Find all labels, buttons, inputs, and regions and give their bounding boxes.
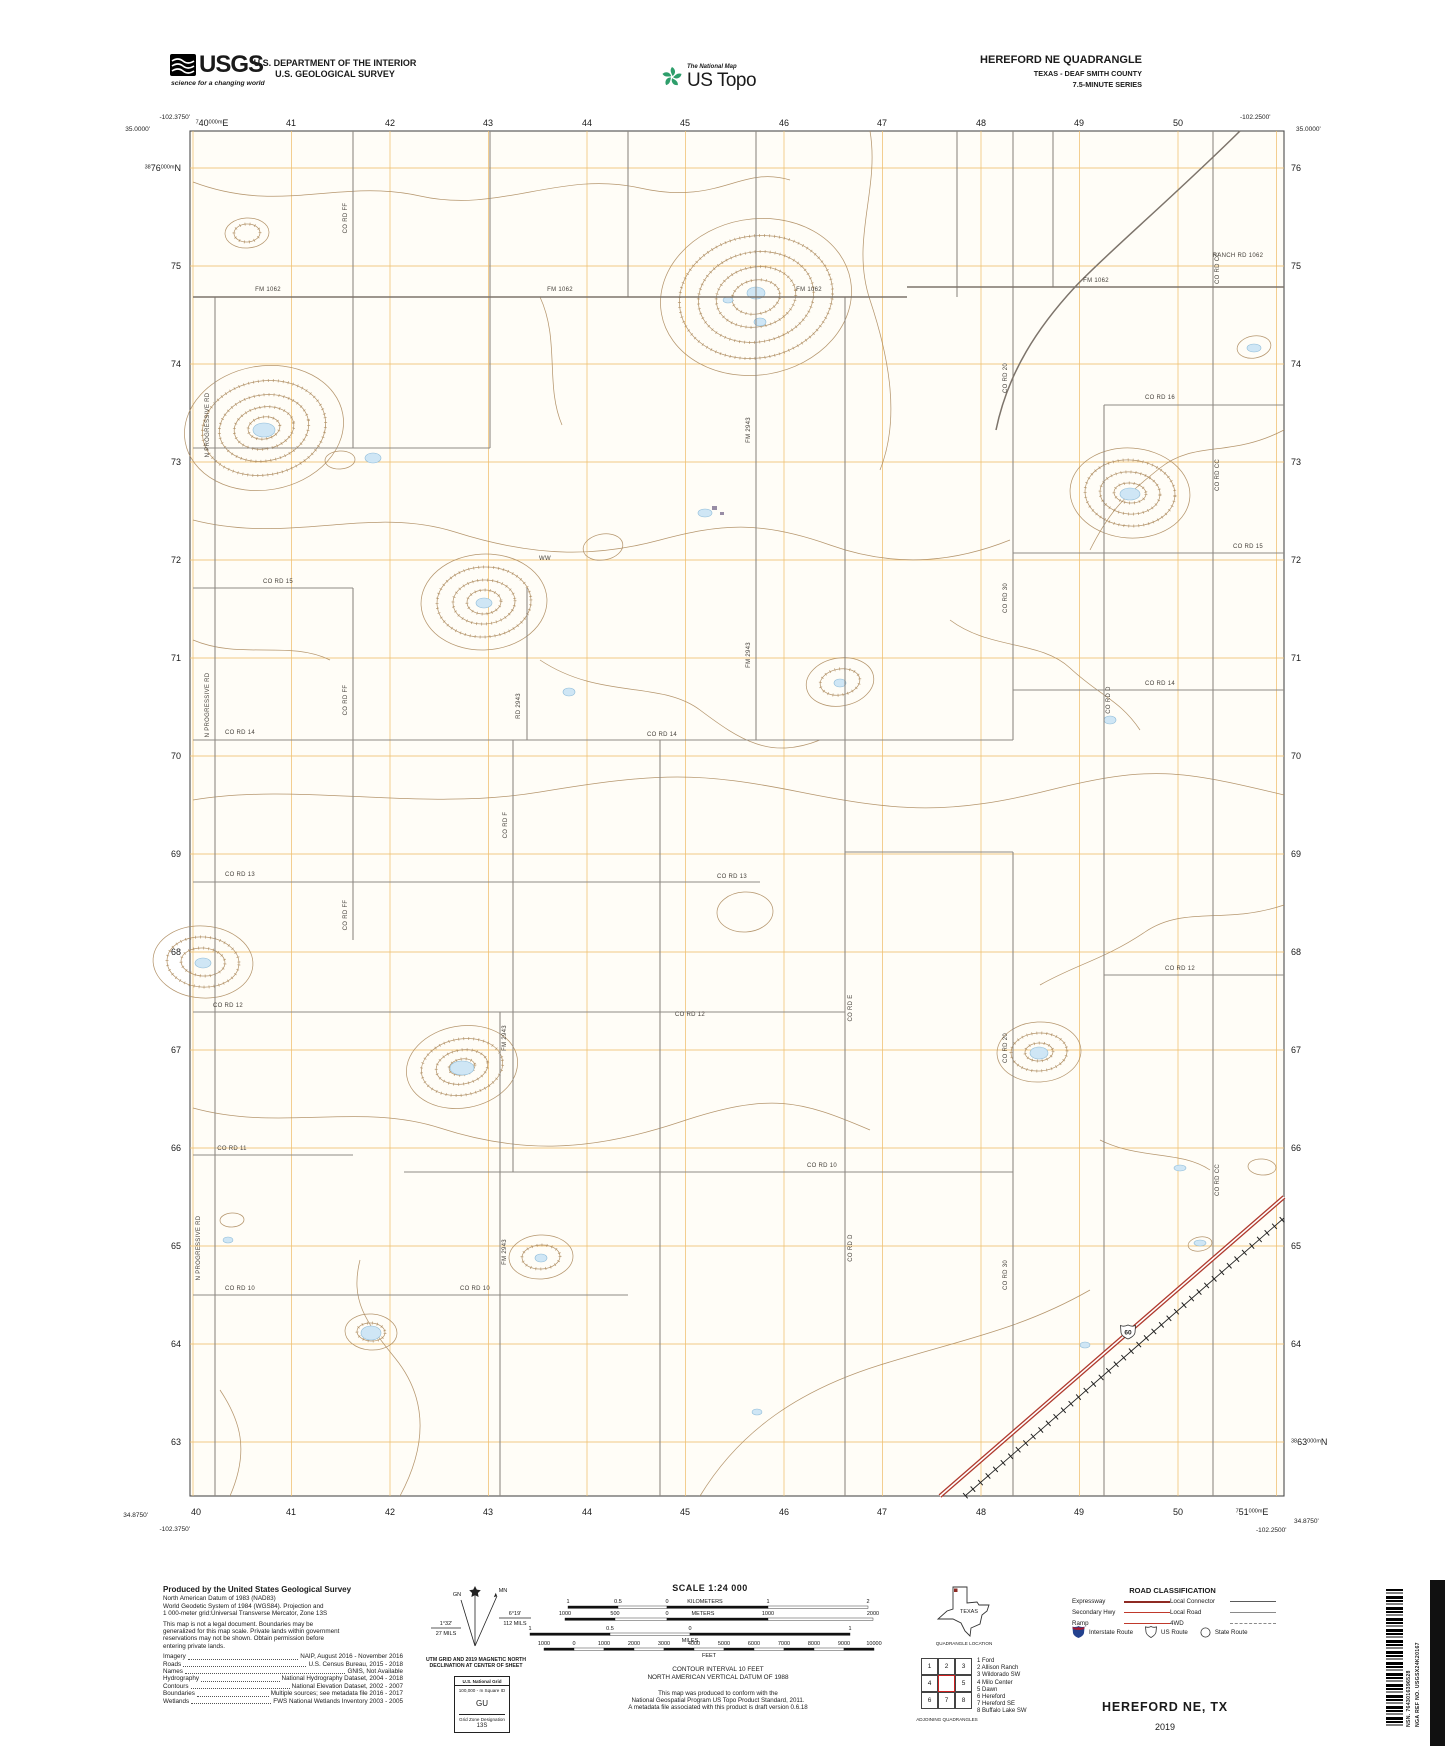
grid-label: 42 <box>385 1507 395 1517</box>
usng-zone-label: Grid Zone Designation <box>455 1715 509 1722</box>
road-label: CO RD 12 <box>1165 966 1195 972</box>
road-label: FM 1062 <box>1083 278 1109 284</box>
svg-text:0: 0 <box>665 1611 668 1617</box>
road-label: FM 1062 <box>255 287 281 293</box>
road-label: CO RD 15 <box>1233 544 1263 550</box>
road-label: FM 1062 <box>547 287 573 293</box>
road-label: CO RD 10 <box>225 1286 255 1292</box>
local-road-line-sample <box>1230 1612 1276 1613</box>
svg-text:5000: 5000 <box>718 1641 730 1647</box>
credit-source-row: ImageryNAIP, August 2016 - November 2016 <box>163 1653 403 1660</box>
svg-text:1: 1 <box>766 1599 769 1605</box>
grid-label: 69 <box>1291 849 1301 859</box>
data-sources-list: ImageryNAIP, August 2016 - November 2016… <box>163 1653 403 1705</box>
grid-label: 67 <box>171 1045 181 1055</box>
svg-text:8000: 8000 <box>808 1641 820 1647</box>
grid-label: 67 <box>1291 1045 1301 1055</box>
adjoining-quad-name: 6 Hereford <box>977 1694 1027 1701</box>
legal-line: reservations may not be shown. Obtain pe… <box>163 1635 403 1642</box>
svg-text:2000: 2000 <box>628 1641 640 1647</box>
road-label: N PROGRESSIVE RD <box>205 392 211 457</box>
svg-text:0: 0 <box>688 1626 691 1632</box>
road-label: CO RD 16 <box>1145 395 1175 401</box>
road-label: CO RD F <box>503 812 509 839</box>
svg-text:1000: 1000 <box>762 1611 774 1617</box>
adjoining-cell: 1 <box>921 1658 939 1676</box>
grid-label: 48 <box>976 118 986 128</box>
road-label: CO RD CC <box>1215 252 1221 284</box>
svg-text:FEET: FEET <box>702 1653 717 1659</box>
road-label: CO RD 30 <box>1003 1260 1009 1290</box>
road-label: CO RD FF <box>343 900 349 931</box>
grid-label: 45 <box>680 1507 690 1517</box>
legal-line: This map is not a legal document. Bounda… <box>163 1621 403 1628</box>
scale-bars: 10.5012KILOMETERS1000500010002000METERS1… <box>480 1595 910 1667</box>
credits-title: Produced by the United States Geological… <box>163 1586 403 1593</box>
svg-text:0: 0 <box>572 1641 575 1647</box>
grid-label: 75 <box>1291 261 1301 271</box>
svg-text:1: 1 <box>848 1626 851 1632</box>
svg-text:2: 2 <box>866 1599 869 1605</box>
credit-source-row: BoundariesMultiple sources; see metadata… <box>163 1690 403 1697</box>
adjoining-cell: 3 <box>955 1658 973 1676</box>
state-route-label: State Route <box>1215 1629 1248 1636</box>
adjoining-cell: 2 <box>938 1658 956 1676</box>
scale-title: SCALE 1:24 000 <box>560 1583 860 1593</box>
grid-label: 46 <box>779 1507 789 1517</box>
grid-label: 70 <box>1291 751 1301 761</box>
svg-text:1000: 1000 <box>538 1641 550 1647</box>
adjoining-quad-name: 3 Wildorado SW <box>977 1672 1027 1679</box>
road-label: CO RD 13 <box>225 872 255 878</box>
barcode-nsn: NSN. 7643016396528 <box>1406 1587 1412 1727</box>
barcode-nga-ref: NGA REF NO. USGSX24K20167 <box>1415 1587 1421 1727</box>
quad-location-marker <box>954 1589 958 1593</box>
grid-label: 47 <box>877 1507 887 1517</box>
usng-square-id: GU <box>455 1693 509 1714</box>
standard-conformance-note: This map was produced to conform with th… <box>560 1690 876 1712</box>
state-locator-map: TEXAS <box>936 1586 992 1638</box>
grid-label: 65 <box>171 1241 181 1251</box>
road-classification-title: ROAD CLASSIFICATION <box>1070 1586 1275 1595</box>
road-label: CO RD E <box>848 994 854 1021</box>
grid-label: 75 <box>171 261 181 271</box>
svg-text:500: 500 <box>610 1611 619 1617</box>
grid-label: 73 <box>1291 457 1301 467</box>
svg-text:0.5: 0.5 <box>606 1626 614 1632</box>
map-neatline <box>190 131 1284 1496</box>
adjoining-cell: 7 <box>938 1692 956 1710</box>
state-route-circle-icon <box>1200 1627 1211 1638</box>
sheet-title: HEREFORD NE, TX <box>1055 1700 1275 1714</box>
svg-text:4000: 4000 <box>688 1641 700 1647</box>
credit-source-row: NamesGNIS, Not Available <box>163 1668 403 1675</box>
svg-text:0: 0 <box>665 1599 668 1605</box>
grid-label: 45 <box>680 118 690 128</box>
grid-label: 68 <box>1291 947 1301 957</box>
road-label: CO RD 11 <box>217 1146 247 1152</box>
svg-text:10000: 10000 <box>866 1641 881 1647</box>
legend-local-road-label: Local Road <box>1170 1609 1230 1616</box>
grid-label: 48 <box>976 1507 986 1517</box>
adjoining-quad-name: 4 Milo Center <box>977 1680 1027 1687</box>
adjoining-quad-name: 7 Hereford SE <box>977 1701 1027 1708</box>
grid-label: 74 <box>171 359 181 369</box>
legend-expressway-label: Expressway <box>1072 1598 1124 1605</box>
grid-label: 72 <box>171 555 181 565</box>
usng-zone: 13S <box>455 1722 509 1732</box>
grid-label: 41 <box>286 118 296 128</box>
road-label: N PROGRESSIVE RD <box>196 1215 202 1280</box>
svg-text:0.5: 0.5 <box>614 1599 622 1605</box>
road-label: CO RD 14 <box>225 730 255 736</box>
road-label: FM 2943 <box>746 417 752 443</box>
adjoining-quad-name: 2 Allison Ranch <box>977 1665 1027 1672</box>
adjoining-quadrangles-grid: 12345678 <box>921 1658 972 1709</box>
svg-text:7000: 7000 <box>778 1641 790 1647</box>
adjoining-cell: 4 <box>921 1675 939 1693</box>
grid-label: 71 <box>171 653 181 663</box>
credit-source-row: RoadsU.S. Census Bureau, 2015 - 2018 <box>163 1661 403 1668</box>
us-route-number: 60 <box>1124 1330 1132 1337</box>
barcode <box>1386 1589 1403 1727</box>
secondary-hwy-line-sample <box>1124 1612 1170 1613</box>
adjoining-quadrangles-list: 1 Ford2 Allison Ranch3 Wildorado SW4 Mil… <box>977 1658 1027 1716</box>
road-label: CO RD 13 <box>717 874 747 880</box>
svg-text:KILOMETERS: KILOMETERS <box>687 1599 723 1605</box>
grid-label: 64 <box>171 1339 181 1349</box>
road-label: CO RD 14 <box>1145 681 1175 687</box>
svg-text:1: 1 <box>528 1626 531 1632</box>
map-canvas: 60 740000mE41424344454647484950404142434… <box>0 0 1445 1746</box>
interstate-route-label: Interstate Route <box>1089 1629 1133 1636</box>
interstate-shield-icon <box>1072 1626 1085 1638</box>
adjoining-quadrangles-caption: ADJOINING QUADRANGLES <box>903 1717 991 1722</box>
legend-local-connector-label: Local Connector <box>1170 1598 1230 1605</box>
road-label: CO RD CC <box>1215 459 1221 491</box>
grid-label: 66 <box>1291 1143 1301 1153</box>
svg-text:2000: 2000 <box>867 1611 879 1617</box>
grid-label: 50 <box>1173 118 1183 128</box>
road-label: FM 2943 <box>502 1239 508 1265</box>
grid-label: 46 <box>779 118 789 128</box>
adjoining-quad-name: 8 Buffalo Lake SW <box>977 1708 1027 1715</box>
local-connector-line-sample <box>1230 1601 1276 1602</box>
road-label: CO RD FF <box>343 203 349 234</box>
grid-label: 3863000mN <box>1291 1437 1327 1447</box>
corner-coord-se-lat: 34.8750' <box>1294 1518 1319 1525</box>
datum-line: World Geodetic System of 1984 (WGS84). P… <box>163 1603 403 1610</box>
adjoining-cell: 5 <box>955 1675 973 1693</box>
grid-label: 71 <box>1291 653 1301 663</box>
grid-label: 72 <box>1291 555 1301 565</box>
usng-title: U.S. National Grid <box>455 1677 509 1686</box>
svg-text:1000: 1000 <box>598 1641 610 1647</box>
adjoining-quad-name: 5 Dawn <box>977 1687 1027 1694</box>
usng-square-id-label: 100,000 - m Square ID <box>455 1686 509 1693</box>
road-label: FM 2943 <box>502 1025 508 1051</box>
corner-coord-sw-lat: 34.8750' <box>88 1512 148 1519</box>
gn-declination-mils: 27 MILS <box>436 1631 457 1637</box>
corner-coord-nw-lat: 35.0000' <box>90 126 150 133</box>
datum-line: North American Datum of 1983 (NAD83) <box>163 1595 403 1602</box>
svg-text:1000: 1000 <box>559 1611 571 1617</box>
gn-declination-value: 1°32' <box>440 1621 452 1627</box>
road-label: WW <box>539 556 551 562</box>
grid-label: 76 <box>1291 163 1301 173</box>
grid-label: 41 <box>286 1507 296 1517</box>
usng-box: U.S. National Grid 100,000 - m Square ID… <box>454 1676 510 1733</box>
legal-line: generalized for this map scale. Private … <box>163 1628 403 1635</box>
grid-label: 69 <box>171 849 181 859</box>
corner-coord-ne-lon: -102.2500' <box>1240 114 1271 121</box>
grid-label: 740000mE <box>196 118 229 128</box>
corner-coord-nw-lon: -102.3750' <box>128 114 190 121</box>
magnetic-north-label: MN <box>499 1588 508 1594</box>
usgs-topo-sheet: USGS science for a changing world U.S. D… <box>0 0 1445 1746</box>
adjoining-current-quad <box>938 1675 956 1693</box>
road-label: CO RD 30 <box>1003 583 1009 613</box>
quadrangle-location-caption: QUADRANGLE LOCATION <box>926 1641 1002 1646</box>
grid-label: 50 <box>1173 1507 1183 1517</box>
grid-label: 49 <box>1074 118 1084 128</box>
grid-label: 751000mE <box>1236 1507 1269 1517</box>
road-classification-legend: Expressway Local Connector Secondary Hwy… <box>1072 1598 1276 1627</box>
road-label: FM 1062 <box>796 287 822 293</box>
grid-label: 65 <box>1291 1241 1301 1251</box>
road-label: CO RD D <box>848 1234 854 1262</box>
road-label: CO RD 10 <box>807 1163 837 1169</box>
road-label: CO RD 14 <box>647 732 677 738</box>
credit-source-row: WetlandsFWS National Wetlands Inventory … <box>163 1698 403 1705</box>
grid-label: 49 <box>1074 1507 1084 1517</box>
road-label: RD 2943 <box>516 693 522 719</box>
adjoining-cell: 8 <box>955 1692 973 1710</box>
legal-line: entering private lands. <box>163 1643 403 1650</box>
road-label: CO RD 20 <box>1003 363 1009 393</box>
road-label: CO RD 12 <box>675 1012 705 1018</box>
road-label: CO RD 12 <box>213 1003 243 1009</box>
svg-text:METERS: METERS <box>692 1611 715 1617</box>
fwd-line-sample <box>1230 1623 1276 1624</box>
grid-label: 42 <box>385 118 395 128</box>
grid-label: 63 <box>171 1437 181 1447</box>
us-route-label: US Route <box>1161 1629 1188 1636</box>
adjoining-cell: 6 <box>921 1692 939 1710</box>
grid-label: 68 <box>171 947 181 957</box>
svg-text:3000: 3000 <box>658 1641 670 1647</box>
road-label: CO RD D <box>1106 686 1112 714</box>
road-label: CO RD CC <box>1215 1164 1221 1196</box>
svg-text:9000: 9000 <box>838 1641 850 1647</box>
contour-interval-note: CONTOUR INTERVAL 10 FEET NORTH AMERICAN … <box>570 1666 866 1682</box>
grid-label: 47 <box>877 118 887 128</box>
adjoining-quad-name: 1 Ford <box>977 1658 1027 1665</box>
road-label: CO RD 10 <box>460 1286 490 1292</box>
grid-label: 3876000mN <box>145 163 181 173</box>
state-name: TEXAS <box>960 1609 978 1615</box>
expressway-line-sample <box>1124 1601 1170 1603</box>
route-marker-legend: Interstate Route US Route State Route <box>1072 1626 1282 1638</box>
grid-label: 44 <box>582 118 592 128</box>
datum-line: 1 000-meter grid:Universal Transverse Me… <box>163 1610 403 1617</box>
credit-source-row: ContoursNational Elevation Dataset, 2002… <box>163 1683 403 1690</box>
credit-source-row: HydrographyNational Hydrography Dataset,… <box>163 1675 403 1682</box>
corner-coord-se-lon: -102.2500' <box>1256 1527 1287 1534</box>
corner-coord-ne-lat: 35.0000' <box>1296 126 1321 133</box>
grid-label: 43 <box>483 118 493 128</box>
legend-secondary-label: Secondary Hwy <box>1072 1609 1124 1616</box>
road-label: FM 2943 <box>746 642 752 668</box>
road-label: CO RD 20 <box>1003 1033 1009 1063</box>
grid-label: 73 <box>171 457 181 467</box>
grid-label: 74 <box>1291 359 1301 369</box>
ramp-line-sample <box>1124 1623 1170 1624</box>
grid-label: 43 <box>483 1507 493 1517</box>
road-label: CO RD 15 <box>263 579 293 585</box>
grid-label: 66 <box>171 1143 181 1153</box>
svg-text:6000: 6000 <box>748 1641 760 1647</box>
production-credits: Produced by the United States Geological… <box>163 1586 403 1705</box>
sheet-year: 2019 <box>1055 1722 1275 1732</box>
grid-label: 70 <box>171 751 181 761</box>
road-label: N PROGRESSIVE RD <box>205 672 211 737</box>
grid-north-label: GN <box>453 1592 461 1598</box>
road-label: CO RD FF <box>343 685 349 716</box>
grid-label: 64 <box>1291 1339 1301 1349</box>
grid-label: 40 <box>191 1507 201 1517</box>
corner-coord-sw-lon: -102.3750' <box>128 1526 190 1533</box>
svg-text:1: 1 <box>566 1599 569 1605</box>
us-route-shield-icon <box>1145 1626 1157 1638</box>
edge-registration-bar <box>1430 1580 1445 1746</box>
grid-label: 44 <box>582 1507 592 1517</box>
